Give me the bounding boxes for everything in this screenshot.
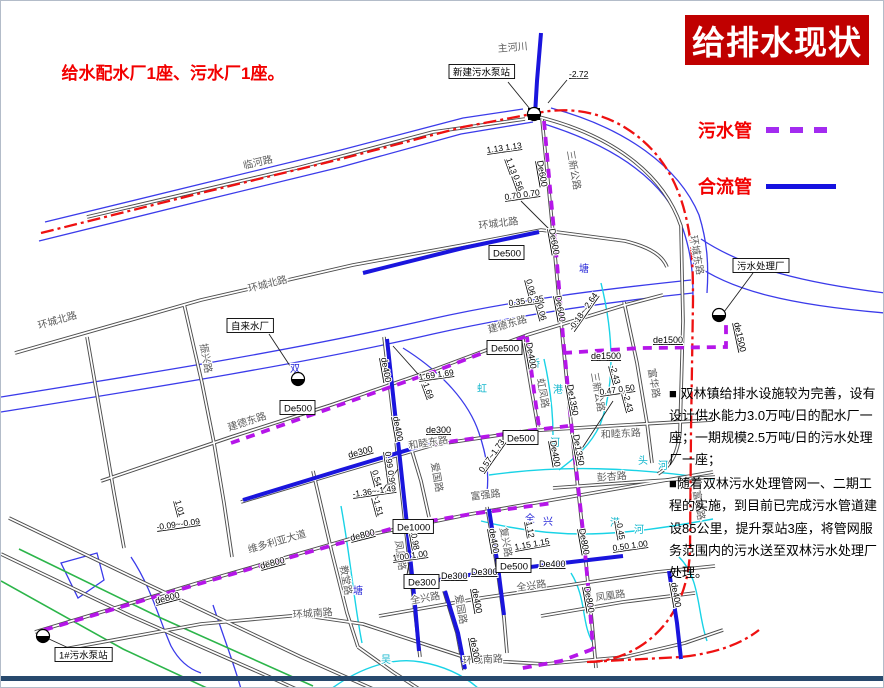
facility-label: 污水处理厂 bbox=[737, 261, 785, 273]
river bbox=[131, 557, 201, 673]
road-label: 环城南路 bbox=[292, 605, 333, 621]
road-label: 全兴路 bbox=[516, 577, 548, 594]
page-title: 给排水现状 bbox=[685, 15, 869, 65]
leader-line bbox=[508, 82, 530, 109]
facility-symbol-half bbox=[37, 636, 50, 643]
pipe-size-label: De600 bbox=[553, 295, 567, 323]
elevation-value: -0.09~-0.09 bbox=[156, 516, 201, 532]
pipe-size-label: de1500 bbox=[591, 351, 621, 361]
sewage-dashed-line-swatch bbox=[766, 127, 836, 133]
pipe-size-label: de800 bbox=[259, 555, 286, 571]
legend-item-sewage: 污水管 bbox=[698, 117, 836, 143]
road-label: 三新公路 bbox=[564, 149, 584, 191]
pipe-size-label: De400 bbox=[539, 559, 566, 569]
road-centerline bbox=[59, 615, 723, 664]
river bbox=[39, 122, 533, 241]
elevation-value: 1.69 1.69 bbox=[418, 367, 455, 382]
road-label: 主河川 bbox=[497, 40, 528, 55]
description-paragraph-2: ■随着双林污水处理管网一、二期工程的实施，到目前已完成污水管道建设85公里，提升… bbox=[669, 473, 883, 583]
pipe-size-label: De800 bbox=[577, 528, 591, 556]
waterway-label: 头 bbox=[638, 455, 648, 467]
river bbox=[551, 108, 708, 293]
legend-item-combined: 合流管 bbox=[698, 173, 836, 199]
river bbox=[45, 109, 523, 222]
road bbox=[15, 230, 667, 353]
facility-label: 1#污水泵站 bbox=[59, 650, 108, 662]
pipe-size-label: De400 bbox=[548, 440, 562, 468]
waterway-label: 兴 bbox=[543, 516, 553, 528]
pipe-size-label: De500 bbox=[284, 404, 312, 415]
facility-label: 新建污水泵站 bbox=[453, 67, 511, 79]
elevation-value: 0.57~1.73 bbox=[476, 437, 506, 474]
pipe-size-label: de1500 bbox=[653, 335, 683, 345]
road-label: 和睦东路 bbox=[407, 433, 449, 452]
pipe-size-label: de400 bbox=[391, 416, 405, 442]
bottom-divider-bar bbox=[1, 676, 884, 681]
waterway-label: 塘 bbox=[579, 262, 589, 275]
waterway-label: 塘 bbox=[353, 584, 363, 597]
legend-label-combined: 合流管 bbox=[698, 173, 752, 199]
description-block: ■ 双林镇给排水设施较为完善，设有设计供水能力3.0万吨/日的配水厂一座；一期规… bbox=[669, 383, 883, 586]
road-centerline bbox=[15, 230, 667, 353]
elevation-value: 1.13 1.13 bbox=[486, 140, 523, 155]
road-label: 和睦东路 bbox=[600, 426, 641, 441]
pipe-size-label: de300 bbox=[426, 425, 451, 435]
waterway-label: 虹 bbox=[477, 383, 487, 395]
road-label: 维多利亚大道 bbox=[246, 527, 307, 556]
facility-symbol-half bbox=[713, 315, 726, 322]
leader-line bbox=[548, 80, 567, 103]
road-label: 临河路 bbox=[242, 153, 274, 172]
road bbox=[379, 566, 715, 616]
road-label: 富强路 bbox=[470, 486, 501, 503]
road-label: 环城北路 bbox=[36, 308, 78, 332]
leader-line bbox=[521, 201, 550, 230]
leader-line bbox=[724, 273, 753, 312]
elevation-value: -2.43 bbox=[621, 392, 636, 414]
river bbox=[701, 239, 884, 293]
pipe-size-label: de400 bbox=[470, 588, 484, 614]
road-label: 富华路 bbox=[645, 367, 663, 399]
summary-note: 给水配水厂1座、污水厂1座。 bbox=[53, 59, 293, 89]
road-label: 爱国路 bbox=[428, 461, 446, 493]
elevation-value: -0.45 bbox=[614, 520, 627, 541]
waterway-label: 河 bbox=[658, 460, 668, 472]
combined-solid-line-swatch bbox=[766, 184, 836, 189]
pipe-size-label: De300 bbox=[441, 571, 468, 581]
elevation-value: -0.18~-2.64 bbox=[566, 290, 599, 332]
pipe-size-label: De300 bbox=[408, 578, 436, 589]
pipe-size-label: De500 bbox=[500, 562, 528, 573]
road-label: 环城北路 bbox=[247, 273, 289, 295]
elevation-value: 1.13 bbox=[504, 156, 519, 175]
pipe-size-label: de300 bbox=[347, 444, 374, 460]
pipe-size-label: De300 bbox=[471, 567, 498, 577]
pipe-size-label: de800 bbox=[349, 527, 376, 543]
elevation-value: -1.36~-1.49 bbox=[352, 483, 397, 499]
pipe-size-label: de800 bbox=[154, 590, 181, 606]
elevation-value: 1.01 bbox=[173, 499, 187, 518]
elevation-value: 0.70 0.70 bbox=[504, 187, 541, 202]
elevation-value: -2.72 bbox=[569, 69, 589, 79]
pipe-size-label: de1500 bbox=[732, 321, 748, 352]
elevation-value: 1.12 bbox=[524, 521, 537, 539]
sewage-pipe bbox=[563, 319, 726, 353]
pipe-size-label: De500 bbox=[491, 344, 519, 355]
road-centerline bbox=[87, 337, 124, 548]
pipe-size-label: De500 bbox=[507, 434, 535, 445]
road-label: 彭杏路 bbox=[596, 469, 627, 484]
road-label: 环城北路 bbox=[478, 214, 519, 232]
combined-pipe bbox=[535, 33, 541, 115]
pipe-size-label: De500 bbox=[493, 249, 521, 260]
slide-page: 临河路环城北路环城北路环城北路环城东路建德东路建德东路和睦东路和睦东路维多利亚大… bbox=[0, 0, 884, 688]
canal bbox=[331, 661, 479, 688]
elevation-value: 1.69 bbox=[421, 381, 436, 400]
elevation-value: 0.06 bbox=[535, 303, 549, 322]
facility-symbol-half bbox=[292, 379, 305, 386]
waterway-label: 港 bbox=[553, 384, 563, 396]
road-label: 建德东路 bbox=[486, 312, 528, 336]
legend-label-sewage: 污水管 bbox=[698, 117, 752, 143]
elevation-value: -1.51 bbox=[371, 496, 386, 518]
waterway-label: 河 bbox=[634, 524, 644, 536]
pipe-size-label: De1000 bbox=[397, 523, 430, 534]
waterway-label: 吴 bbox=[381, 654, 391, 666]
facility-label: 自来水厂 bbox=[231, 321, 269, 333]
description-paragraph-1: ■ 双林镇给排水设施较为完善，设有设计供水能力3.0万吨/日的配水厂一座；一期规… bbox=[669, 383, 883, 471]
elevation-value: 1.15 1.15 bbox=[514, 536, 551, 552]
